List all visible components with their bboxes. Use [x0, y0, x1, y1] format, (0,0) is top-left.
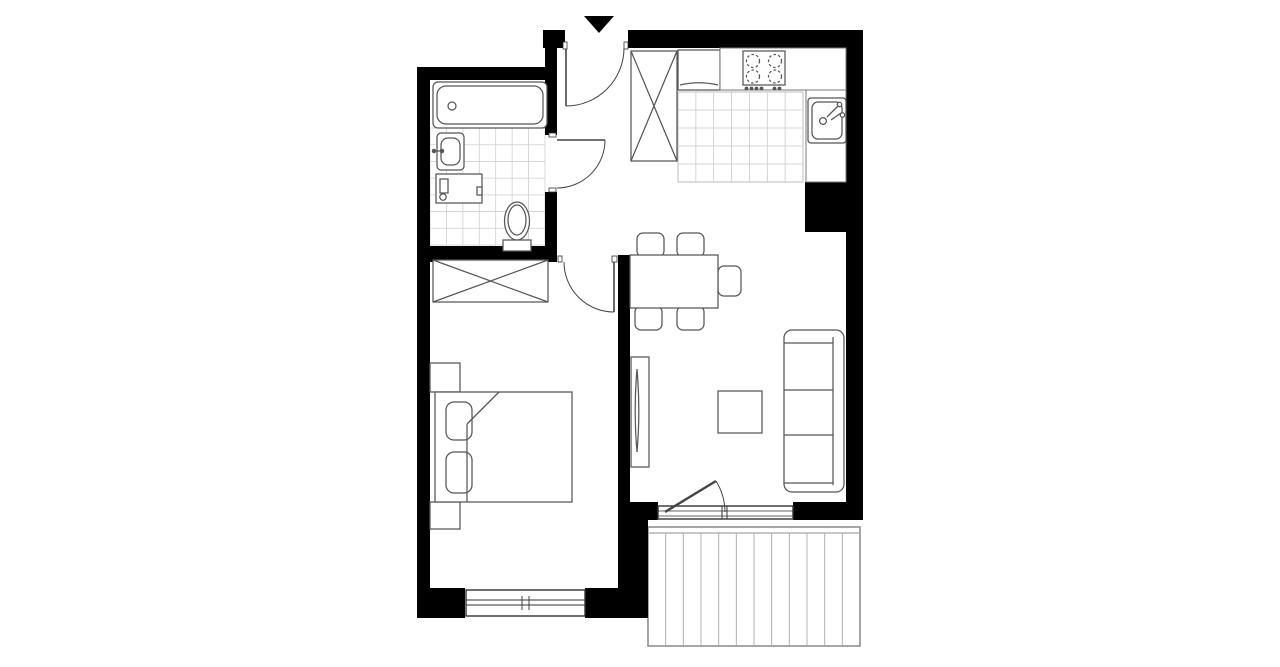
- bedroom-window: [466, 590, 585, 616]
- sofa: [784, 330, 844, 492]
- wall-bottom-right-of-window: [585, 588, 648, 618]
- wall-kitchen-living-block: [805, 182, 863, 232]
- bedroom-wardrobe: [433, 260, 548, 302]
- wall-left: [417, 67, 430, 618]
- floor-plan: [0, 0, 1280, 667]
- tv-stand: [631, 357, 649, 467]
- bathtub: [433, 82, 547, 128]
- dining-chair-bottom-left: [635, 306, 662, 330]
- dining-chair-right: [718, 266, 741, 296]
- wall-top-left-stub: [543, 30, 565, 48]
- bathroom-door: [557, 140, 605, 188]
- wall-middle-vertical: [618, 255, 630, 502]
- wall-bathroom-right-lower: [545, 192, 557, 248]
- kitchen-tall-cabinet: [631, 51, 677, 161]
- kitchen-fridge: [678, 50, 720, 90]
- wall-bathroom-top: [417, 67, 545, 80]
- wall-living-bottom-right: [793, 502, 863, 520]
- entrance-direction-arrow: [584, 16, 614, 33]
- nightstand-bottom: [430, 502, 460, 529]
- balcony: [648, 527, 860, 646]
- toilet: [503, 202, 531, 251]
- dining-chair-bottom-right: [677, 306, 704, 330]
- washing-machine: [436, 174, 482, 203]
- dining-chair-top-left: [637, 233, 664, 257]
- coffee-table: [718, 391, 762, 433]
- bathroom-sink: [432, 133, 464, 170]
- wall-top: [628, 30, 863, 48]
- entrance-door: [566, 48, 624, 106]
- floor-plan-svg: [0, 0, 1280, 667]
- dining-chair-top-right: [677, 233, 704, 257]
- stove: [743, 51, 785, 90]
- bedroom-door: [564, 262, 614, 312]
- door-hinge-marks: [549, 42, 628, 262]
- dining-table: [630, 255, 718, 308]
- kitchen-sink: [808, 98, 846, 143]
- balcony-window: [658, 506, 793, 519]
- bed: [435, 392, 572, 502]
- kitchen-floor-tiles: [678, 92, 803, 182]
- nightstand-top: [430, 363, 460, 392]
- wall-right: [846, 48, 863, 520]
- wall-bottom-left-of-window: [417, 588, 465, 618]
